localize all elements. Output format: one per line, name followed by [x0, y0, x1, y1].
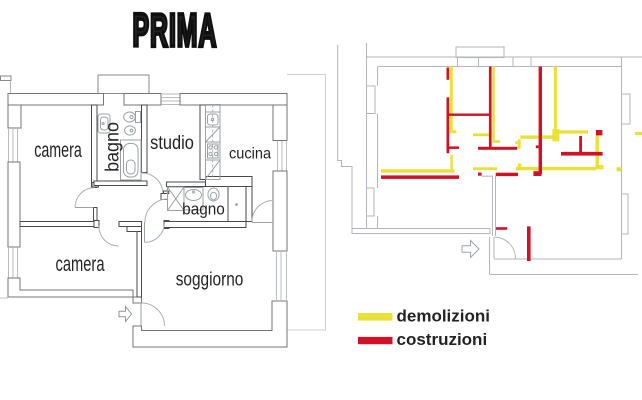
svg-text:demolizioni: demolizioni [397, 306, 491, 325]
svg-text:studio: studio [150, 132, 194, 154]
svg-text:camera: camera [56, 252, 106, 275]
svg-text:bagno: bagno [101, 122, 123, 172]
svg-text:soggiorno: soggiorno [176, 268, 244, 290]
svg-text:cucina: cucina [229, 145, 272, 163]
svg-text:bagno: bagno [182, 201, 225, 219]
svg-text:PRIMA: PRIMA [133, 5, 218, 56]
svg-text:costruzioni: costruzioni [397, 330, 488, 349]
svg-text:camera: camera [34, 138, 82, 161]
